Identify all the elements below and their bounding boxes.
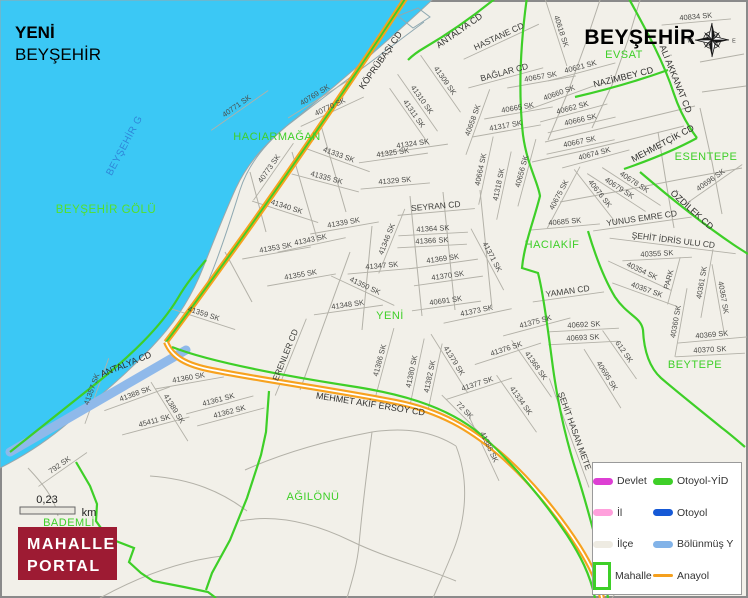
area-label: YENİ	[376, 309, 404, 322]
street-label: 40693 SK	[566, 332, 599, 343]
mahalle-portal-logo[interactable]: MAHALLE PORTAL	[18, 527, 117, 580]
legend-label: Otoyol	[677, 507, 707, 519]
street-label: PARK	[662, 269, 676, 291]
street-label: 40660 SK	[542, 83, 576, 103]
area-label: EVSAT	[605, 49, 643, 61]
legend-label: İlçe	[617, 538, 633, 550]
lake-name-label: BEYŞEHİR GÖLÜ	[56, 203, 156, 216]
legend-label: Mahalle	[615, 570, 652, 582]
legend-label: Anayol	[677, 570, 709, 582]
street-label: 41360 SK	[172, 370, 206, 385]
legend-item: Devlet	[593, 468, 653, 494]
legend-item: Otoyol	[653, 500, 741, 526]
area-label: BEYTEPE	[668, 359, 722, 371]
road-label: ALİ AKKANAT CD	[658, 44, 695, 115]
street-label: 40618 SK	[552, 14, 571, 48]
legend-label: Otoyol-YİD	[677, 475, 728, 487]
street-label: 40695 SK	[595, 359, 620, 392]
scale-value: 0,23	[36, 494, 57, 506]
street-label: 40773 SK	[256, 152, 282, 184]
street-label: 40370 SK	[693, 344, 726, 355]
street-label: 41309 SK	[432, 64, 458, 96]
legend-item: İlçe	[593, 531, 653, 557]
street-label: 40357 SK	[630, 280, 664, 300]
street-label: 40696 SK	[694, 167, 726, 193]
street-line	[497, 375, 537, 432]
street-label: 41317 SK	[489, 118, 523, 133]
legend-item: Mahalle	[593, 563, 653, 589]
street-label: 41353 SK	[259, 240, 293, 255]
legend-swatch	[593, 562, 611, 590]
area-label: HACIARMAĞAN	[233, 130, 320, 143]
legend-swatch	[593, 541, 613, 548]
street-label: 41359 SK	[187, 304, 221, 323]
legend-label: Bölünmüş Y	[677, 538, 733, 550]
street-label: 41366 SK	[415, 235, 448, 246]
street-label: SEYRAN CD	[411, 199, 461, 213]
legend-label: Devlet	[617, 475, 647, 487]
street-label: 41379 SK	[442, 344, 467, 377]
street-label: 41355 SK	[284, 267, 318, 282]
neighborhood-title: YENİ	[15, 23, 55, 42]
legend-swatch	[593, 478, 613, 485]
street-label: HASTANE CD	[472, 20, 525, 52]
legend-swatch	[653, 478, 673, 485]
street-label: YUNUS EMRE CD	[606, 208, 678, 228]
street-label: 41348 SK	[331, 298, 365, 311]
legend-item: Otoyol-YİD	[653, 468, 741, 494]
logo-line-2: PORTAL	[27, 556, 117, 578]
street-label: 40355 SK	[640, 248, 673, 259]
street-line	[549, 379, 589, 488]
legend-item: İl	[593, 500, 653, 526]
legend-swatch	[653, 509, 673, 516]
street-label: 40354 SK	[625, 260, 659, 282]
street-label: 41369 SK	[426, 252, 460, 265]
map-legend: DevletOtoyol-YİDİlOtoyolİlçeBölünmüş YMa…	[592, 462, 742, 595]
area-label: AĞILÖNÜ	[286, 490, 339, 503]
district-subtitle: BEYŞEHİR	[15, 45, 101, 64]
street-label: 41339 SK	[327, 215, 361, 230]
legend-swatch	[653, 574, 673, 577]
street-label: 41325 SK	[376, 146, 410, 159]
street-label: BAĞLAR CD	[479, 61, 529, 83]
street-label: 41334 SK	[508, 384, 534, 416]
street-label: 40692 SK	[567, 319, 600, 330]
street-label: 41368 SK	[523, 349, 549, 381]
legend-swatch	[653, 541, 673, 548]
street-label: 40691 SK	[429, 294, 463, 307]
street-label: 40361 SK	[694, 266, 709, 300]
legend-swatch	[593, 509, 613, 516]
street-label: 41370 SK	[431, 269, 465, 282]
street-label: 40658 SK	[463, 103, 483, 137]
legend-label: İl	[617, 507, 622, 519]
svg-text:E: E	[732, 39, 736, 45]
street-label: 41385 SK	[478, 430, 500, 464]
street-label: 40360 SK	[668, 305, 683, 339]
logo-line-1: MAHALLE	[27, 534, 117, 556]
legend-item: Anayol	[653, 563, 741, 589]
street-label: 41364 SK	[416, 223, 449, 234]
street-label: 41340 SK	[270, 197, 304, 216]
road-mae-gap	[166, 342, 602, 598]
street-label: 40665 SK	[501, 100, 535, 115]
city-title: BEYŞEHİR	[584, 26, 695, 49]
road-mae-orange[interactable]	[166, 342, 602, 598]
street-label: ŞEHİT HASAN METE	[556, 391, 594, 472]
area-label: ESENTEPE	[675, 151, 738, 163]
legend-item: Bölünmüş Y	[653, 531, 741, 557]
area-label: HACIAKİF	[525, 238, 580, 251]
street-label: 41377 SK	[460, 374, 494, 393]
map-window: 40771 SK40769 SK40770 SK40773 SK41333 SK…	[0, 0, 748, 598]
street-label: 40367 SK	[716, 281, 731, 315]
scale-unit: km	[82, 507, 97, 519]
street-label: 41333 SK	[322, 145, 356, 165]
street-label: 41376 SK	[489, 339, 523, 358]
street-label: 41346 SK	[376, 222, 397, 256]
street-label: ŞEHİT İDRİS ULU CD	[631, 230, 716, 250]
svg-text:W: W	[687, 39, 693, 45]
